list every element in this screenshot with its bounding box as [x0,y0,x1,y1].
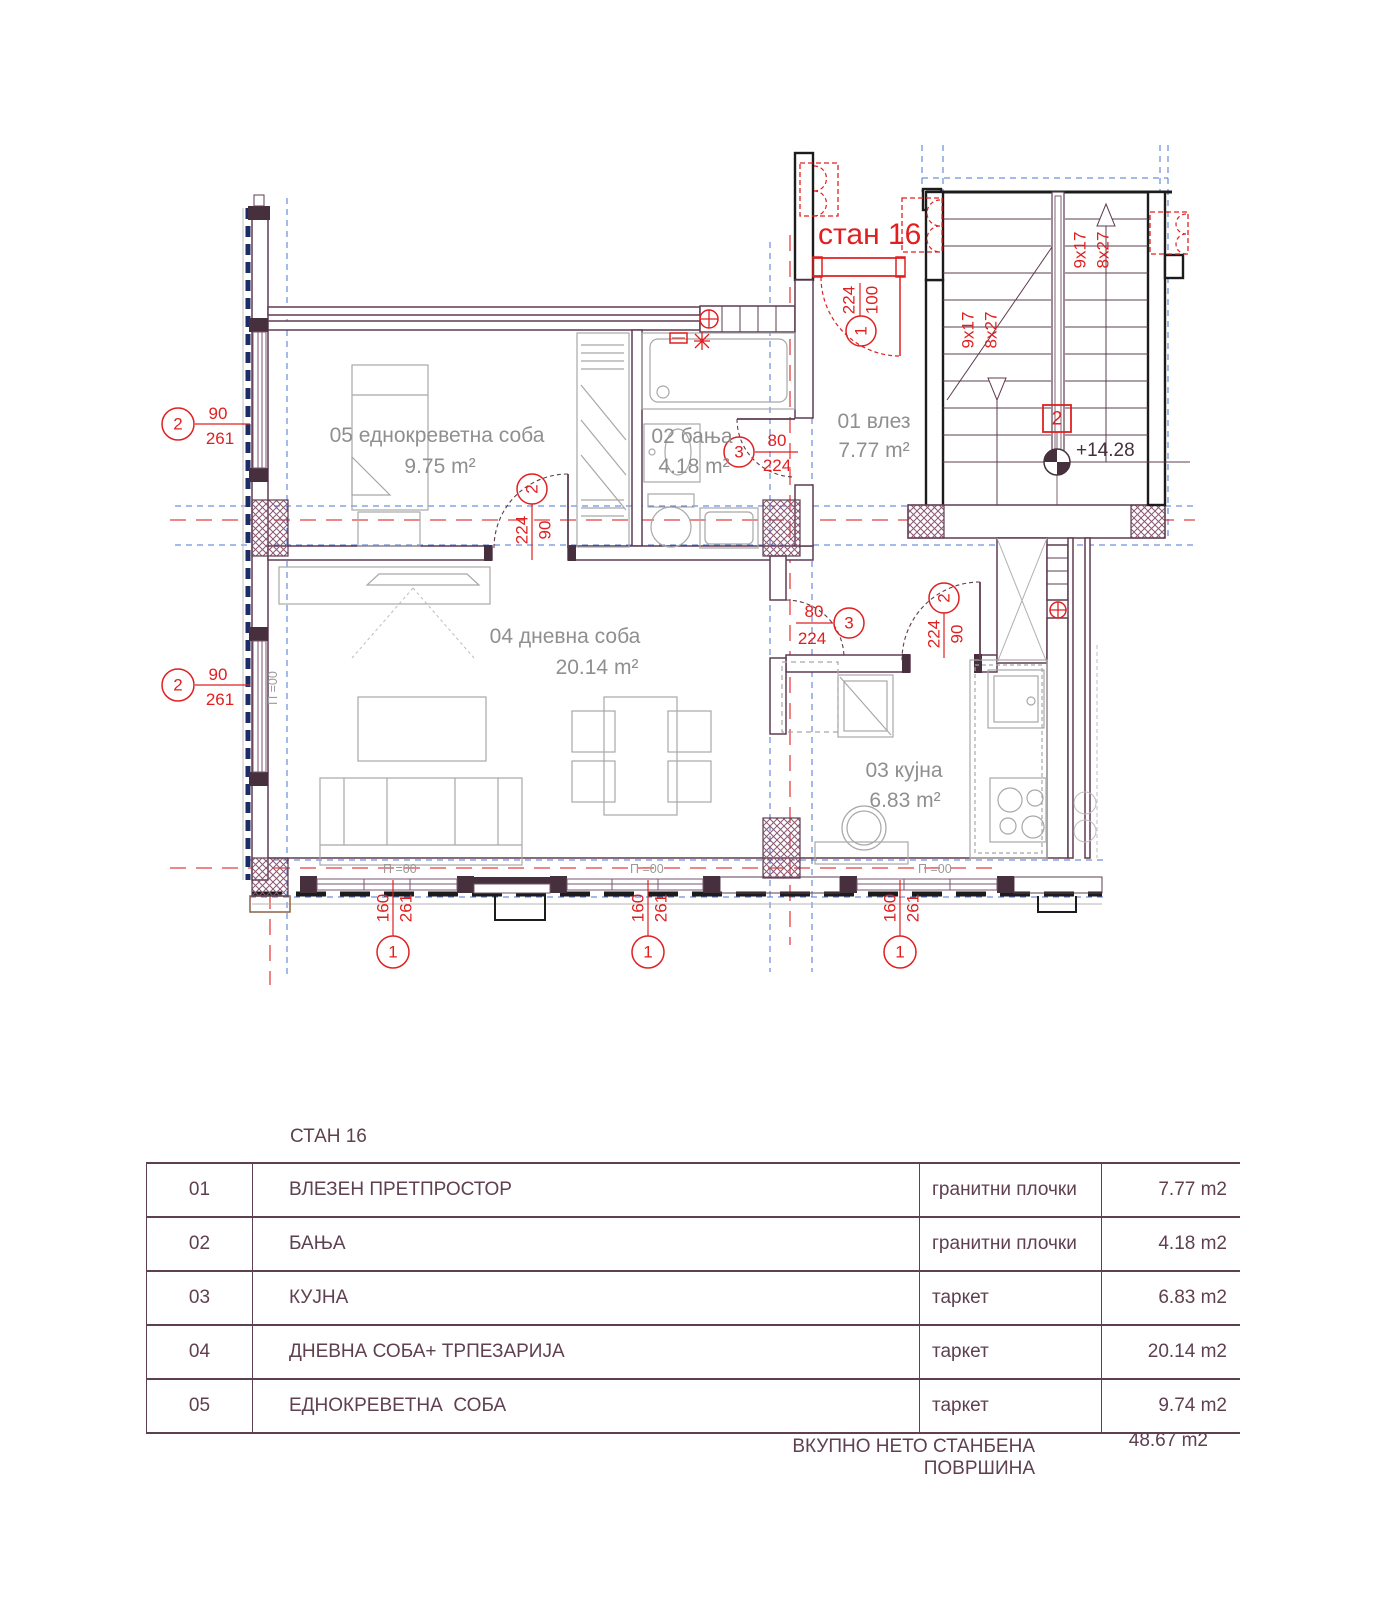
dim-value: 224 [925,620,944,648]
floor-finish: гранитни плочки [920,1164,1102,1216]
row-number: 03 [147,1272,253,1324]
dim-value: 90 [209,665,228,684]
table-row: 01 ВЛЕЗЕН ПРЕТПРОСТОР гранитни плочки 7.… [146,1162,1240,1218]
column [763,500,800,556]
room-label-entry: 01 влез [838,410,911,433]
dim-value: 261 [904,894,923,922]
stair-label: 9x17 [1071,232,1090,269]
stair-down-arrow [988,378,1006,400]
dim-marker: 2 [173,676,182,695]
floor-level-label: П =00 [918,862,952,876]
dim-bedroom-door: 224 90 2 [513,474,555,560]
washing-machine [700,508,758,548]
dim-living-kitchen-door: 80 224 3 [796,602,864,648]
column [1131,505,1165,538]
dim-left-window-1: 90 261 2 [162,404,250,448]
dim-bath-door: 80 224 3 [724,431,798,475]
dim-kitchen-door: 224 90 2 [925,583,967,658]
dim-value: 224 [840,286,859,314]
table-row: 04 ДНЕВНА СОБА+ ТРПЕЗАРИЈА таркет 20.14 … [146,1326,1240,1380]
dim-marker: 1 [388,943,397,962]
dim-value: 80 [805,602,824,621]
window-left-1 [253,332,266,468]
total-value: 48.67 m2 [1098,1430,1208,1452]
room-label-kitchen: 03 кујна [865,759,942,782]
kitchen-sink [988,670,1044,728]
dim-value: 160 [629,894,648,922]
dim-marker: 2 [523,484,542,493]
table-row: 02 БАЊА гранитни плочки 4.18 m2 [146,1218,1240,1272]
row-number: 02 [147,1218,253,1270]
bedroom-living-wall [268,546,492,560]
floor-level-label: П =00 [266,671,280,705]
room-name: БАЊА [253,1218,920,1270]
room-area: 7.77 m2 [1102,1179,1241,1201]
column [252,858,288,896]
dim-value: 90 [948,625,967,644]
floor-level-label: П =00 [630,862,664,876]
room-area: 6.83 m2 [1102,1287,1241,1309]
dim-marker: 3 [734,443,743,462]
room-area: 20.14 m2 [1102,1341,1241,1363]
entry-stair-wall [926,280,943,506]
wardrobe [577,333,629,547]
entrance-step [495,896,545,920]
walls [248,153,1165,893]
stair-landing-wall [908,505,1165,538]
stair-flight-number: 2 [1052,409,1063,430]
stove [990,778,1046,842]
column [908,505,944,538]
room-area: 4.18 m2 [1102,1233,1241,1255]
stair-label: 8x27 [982,312,1001,349]
chair [572,711,615,752]
burner [1000,818,1016,834]
stair-elevation: +14.28 [1076,440,1135,461]
toilet [651,507,691,547]
row-number: 04 [147,1326,253,1378]
dim-left-window-2: 90 261 2 [162,665,250,709]
dim-entry-door: 224 100 1 [840,283,882,346]
dim-value: 261 [397,894,416,922]
row-number: 05 [147,1380,253,1432]
dim-value: 90 [536,521,555,540]
row-number: 01 [147,1164,253,1216]
room-label-living: 04 дневна соба [490,625,641,648]
room-area-bath: 4.18 m² [658,455,729,478]
sofa [320,778,522,865]
table-row: 05 ЕДНОКРЕВЕТНА СОБА таркет 9.74 m2 [146,1380,1240,1434]
room-label-bath: 02 бања [651,425,732,448]
vent-symbol [1050,602,1066,618]
room-area-kitchen: 6.83 m² [869,789,940,812]
finish-table: 01 ВЛЕЗЕН ПРЕТПРОСТОР гранитни плочки 7.… [146,1162,1240,1434]
floor-finish: гранитни плочки [920,1218,1102,1270]
floor-level-label: П =00 [383,862,417,876]
dim-marker: 1 [643,943,652,962]
apartment-title: стан 16 [818,218,921,251]
table-row: 03 КУЈНА таркет 6.83 m2 [146,1272,1240,1326]
room-area-entry: 7.77 m² [838,439,909,462]
room-name: ЕДНОКРЕВЕТНА СОБА [253,1380,920,1432]
chair [572,761,615,802]
bath-fixture-symbols [670,332,710,350]
room-label-bedroom: 05 еднокреветна соба [330,424,545,447]
bedroom-bath-wall [632,330,642,546]
dim-marker: 3 [844,614,853,633]
entry-kitchen-wall [786,655,910,672]
floor-finish: таркет [920,1272,1102,1324]
vent-symbol [700,310,718,328]
dim-value: 100 [863,286,882,314]
kitchen-right-wall [1047,618,1068,858]
furniture [279,333,1097,865]
floor-finish: таркет [920,1380,1102,1432]
column [763,818,800,878]
dim-marker: 1 [852,326,871,335]
stair-label: 9x17 [959,312,978,349]
dim-value: 160 [881,894,900,922]
coffee-table [358,697,486,761]
dim-value: 224 [798,629,826,648]
burner [1027,790,1043,806]
dim-marker: 2 [173,415,182,434]
room-name: КУЈНА [253,1272,920,1324]
dim-value: 224 [513,516,532,544]
table-title: СТАН 16 [290,1126,367,1148]
stair-label: 8x27 [1094,232,1113,269]
room-area: 9.74 m2 [1102,1395,1241,1417]
total-label: ВКУПНО НЕТО СТАНБЕНА ПОВРШИНА [700,1436,1035,1480]
toilet-tank [648,494,694,507]
room-name: ДНЕВНА СОБА+ ТРПЕЗАРИЈА [253,1326,920,1378]
bedroom-top-wall [268,307,700,315]
burner [1022,816,1044,838]
room-name: ВЛЕЗЕН ПРЕТПРОСТОР [253,1164,920,1216]
nightstand [358,512,420,546]
dim-value: 80 [768,431,787,450]
room-area-bedroom: 9.75 m² [404,455,475,478]
balcony-door-panel [474,877,550,884]
dim-value: 261 [206,429,234,448]
dim-value: 224 [763,456,791,475]
chair [668,711,711,752]
chair [668,761,711,802]
floor-finish: таркет [920,1326,1102,1378]
room-area-living: 20.14 m² [556,656,639,679]
tv [367,574,479,585]
round-table [842,806,886,850]
duct-shaft [1047,545,1068,600]
bath-entry-wall [795,280,813,418]
dim-marker: 1 [895,943,904,962]
column [252,500,288,556]
burner [998,788,1022,812]
dim-value: 160 [374,894,393,922]
kitchen-counter [970,660,1047,858]
stair-up-arrow [1097,204,1115,226]
dim-marker: 2 [935,593,954,602]
dim-value: 90 [209,404,228,423]
window-left-2 [253,641,266,772]
living-kitchen-wall [770,556,786,600]
dim-value: 261 [206,690,234,709]
dim-value: 261 [652,894,671,922]
